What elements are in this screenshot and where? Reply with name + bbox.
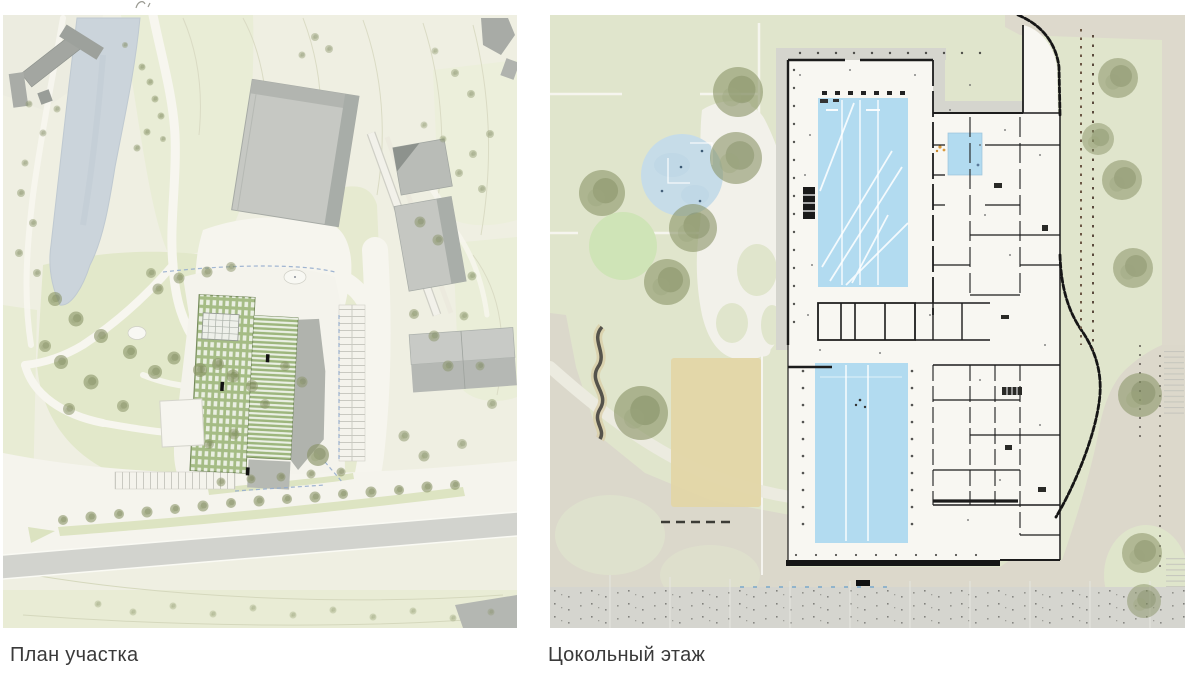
- tree-icon: [835, 554, 837, 556]
- tree-icon: [961, 52, 963, 54]
- tree-icon: [802, 404, 805, 407]
- southeast-building: [409, 327, 517, 392]
- tree-icon: [802, 421, 805, 424]
- pool-stairs: [803, 187, 815, 219]
- tree-icon: [815, 554, 817, 556]
- tree-icon: [452, 484, 456, 488]
- tree-icon: [835, 52, 837, 54]
- tree-icon: [911, 472, 914, 475]
- tree-icon: [417, 221, 421, 225]
- tree-icon: [435, 239, 439, 243]
- tree-icon: [479, 188, 482, 191]
- tree-icon: [911, 506, 914, 509]
- building-south-wall: [786, 560, 1000, 566]
- tree-icon: [1009, 254, 1011, 256]
- tree-icon: [911, 455, 914, 458]
- tree-icon: [300, 54, 303, 57]
- tree-icon: [793, 123, 795, 125]
- tree-icon: [282, 365, 286, 369]
- tree-icon: [55, 108, 58, 111]
- tree-icon: [145, 131, 148, 134]
- tree-icon: [849, 69, 851, 71]
- tree-icon: [1105, 74, 1120, 89]
- tree-icon: [441, 138, 444, 141]
- tree-icon: [116, 513, 120, 517]
- tree-icon: [411, 313, 415, 317]
- tree-icon: [433, 50, 436, 53]
- tree-icon: [895, 554, 897, 556]
- tree-icon: [371, 616, 374, 619]
- tree-icon: [793, 105, 795, 107]
- tree-icon: [41, 345, 46, 350]
- basement-plan-panel: [550, 15, 1185, 628]
- tree-icon: [793, 267, 795, 269]
- tree-icon: [96, 603, 99, 606]
- tree-icon: [119, 405, 124, 410]
- tree-icon: [331, 609, 334, 612]
- east-building-upper: [393, 139, 453, 195]
- tree-icon: [172, 508, 176, 512]
- tree-icon: [153, 98, 156, 101]
- tree-icon: [131, 611, 134, 614]
- tree-icon: [915, 554, 917, 556]
- tree-icon: [206, 443, 210, 447]
- tree-icon: [251, 607, 254, 610]
- tree-icon: [151, 371, 156, 376]
- tree-icon: [487, 133, 490, 136]
- sand-court: [671, 358, 761, 507]
- tree-icon: [231, 433, 235, 437]
- tree-icon: [943, 52, 945, 54]
- tree-icon: [71, 318, 77, 324]
- lawn-circle: [589, 212, 657, 280]
- tree-icon: [875, 554, 877, 556]
- tree-icon: [218, 481, 221, 484]
- tree-icon: [311, 453, 319, 461]
- tree-icon: [468, 93, 471, 96]
- tree-icon: [88, 516, 92, 520]
- tree-icon: [802, 489, 805, 492]
- tree-icon: [720, 153, 740, 173]
- tree-icon: [123, 44, 125, 46]
- tree-icon: [802, 523, 805, 526]
- tree-icon: [911, 489, 914, 492]
- tree-icon: [312, 496, 316, 500]
- tree-icon: [1133, 598, 1146, 611]
- tree-icon: [422, 124, 425, 127]
- splash-pond: [641, 134, 723, 216]
- tree-icon: [452, 72, 455, 75]
- tree-icon: [228, 266, 232, 270]
- tree-icon: [140, 66, 143, 69]
- tree-icon: [451, 617, 454, 620]
- tree-icon: [793, 285, 795, 287]
- tree-icon: [469, 275, 472, 278]
- tree-icon: [811, 264, 813, 266]
- tree-icon: [889, 52, 891, 54]
- tree-icon: [176, 277, 180, 281]
- tree-icon: [879, 352, 881, 354]
- tree-icon: [1004, 129, 1006, 131]
- tree-icon: [461, 315, 464, 318]
- tree-icon: [57, 361, 62, 366]
- tree-icon: [807, 314, 809, 316]
- tree-icon: [653, 278, 670, 295]
- tree-icon: [211, 613, 214, 616]
- tree-icon: [793, 231, 795, 233]
- tree-icon: [456, 172, 459, 175]
- tree-icon: [795, 554, 797, 556]
- tree-icon: [907, 52, 909, 54]
- tree-icon: [489, 403, 493, 407]
- tree-icon: [65, 408, 70, 413]
- tree-icon: [51, 298, 56, 303]
- tree-icon: [421, 455, 425, 459]
- tree-icon: [396, 489, 400, 493]
- tree-icon: [126, 351, 131, 356]
- tree-icon: [248, 478, 251, 481]
- tree-icon: [588, 189, 605, 206]
- tree-icon: [911, 438, 914, 441]
- tree-icon: [793, 69, 795, 71]
- tree-icon: [312, 36, 315, 39]
- tree-icon: [809, 134, 811, 136]
- tree-icon: [955, 554, 957, 556]
- tree-icon: [802, 472, 805, 475]
- tree-icon: [1088, 136, 1100, 148]
- tree-icon: [935, 554, 937, 556]
- tree-icon: [819, 349, 821, 351]
- tree-icon: [802, 370, 805, 373]
- tree-icon: [41, 132, 44, 135]
- tree-icon: [229, 375, 234, 380]
- tree-icon: [802, 438, 805, 441]
- tree-icon: [979, 144, 981, 146]
- tree-icon: [401, 435, 405, 439]
- tree-icon: [853, 52, 855, 54]
- tree-icon: [799, 74, 801, 76]
- site-plan-drawing: [3, 15, 517, 628]
- tree-icon: [34, 272, 37, 275]
- tree-icon: [999, 479, 1001, 481]
- tree-icon: [97, 335, 102, 340]
- tree-icon: [489, 611, 492, 614]
- tree-icon: [16, 252, 19, 255]
- skylight-grid: [202, 313, 239, 341]
- tree-icon: [793, 177, 795, 179]
- tree-icon: [804, 174, 806, 176]
- tree-icon: [1129, 549, 1144, 564]
- tree-icon: [338, 471, 341, 474]
- tree-icon: [911, 370, 914, 373]
- tree-icon: [148, 81, 151, 84]
- tree-icon: [975, 554, 977, 556]
- tree-icon: [262, 403, 266, 407]
- tree-icon: [248, 385, 253, 390]
- tree-icon: [855, 554, 857, 556]
- tree-icon: [159, 115, 162, 118]
- tree-icon: [1044, 344, 1046, 346]
- outdoor-pool: [815, 363, 908, 543]
- tree-icon: [308, 473, 311, 476]
- tree-icon: [459, 443, 463, 447]
- tree-icon: [161, 138, 163, 140]
- tree-icon: [368, 491, 372, 495]
- tree-icon: [979, 379, 981, 381]
- tree-icon: [171, 605, 174, 608]
- tree-icon: [86, 381, 92, 387]
- tree-icon: [911, 421, 914, 424]
- tree-icon: [18, 192, 21, 195]
- tree-icon: [284, 498, 288, 502]
- tree-icon: [793, 321, 795, 323]
- tree-icon: [967, 519, 969, 521]
- tree-icon: [911, 404, 914, 407]
- tree-icon: [911, 387, 914, 390]
- tree-icon: [23, 162, 26, 165]
- tree-icon: [196, 369, 201, 374]
- tree-icon: [135, 147, 138, 150]
- tree-icon: [299, 381, 303, 385]
- indoor-pool: [803, 98, 908, 287]
- tree-icon: [477, 365, 480, 368]
- basement-plan-caption: Цокольный этаж: [548, 644, 705, 666]
- tree-icon: [155, 288, 159, 292]
- site-plan-panel: [3, 15, 517, 628]
- tree-icon: [802, 387, 805, 390]
- tree-icon: [431, 335, 435, 339]
- tree-icon: [278, 476, 281, 479]
- tree-icon: [144, 511, 148, 515]
- tree-icon: [793, 249, 795, 251]
- tree-icon: [30, 222, 33, 225]
- tree-icon: [722, 88, 741, 107]
- tree-icon: [817, 52, 819, 54]
- tree-icon: [27, 103, 30, 106]
- large-hall-building: [232, 79, 359, 226]
- tree-icon: [214, 363, 219, 368]
- tree-icon: [1109, 176, 1124, 191]
- tree-icon: [256, 500, 260, 504]
- tree-icon: [925, 52, 927, 54]
- tree-icon: [793, 141, 795, 143]
- tree-icon: [802, 506, 805, 509]
- tree-icon: [1039, 424, 1041, 426]
- tree-icon: [1039, 154, 1041, 156]
- tree-icon: [470, 153, 473, 156]
- tree-icon: [793, 213, 795, 215]
- tree-icon: [291, 614, 294, 617]
- tree-icon: [204, 271, 208, 275]
- tree-icon: [802, 455, 805, 458]
- tree-icon: [624, 408, 645, 429]
- tree-icon: [914, 74, 916, 76]
- tree-icon: [411, 610, 414, 613]
- tree-icon: [200, 505, 204, 509]
- tree-icon: [340, 493, 344, 497]
- tree-icon: [929, 314, 931, 316]
- tree-icon: [1126, 391, 1143, 408]
- tree-icon: [979, 52, 981, 54]
- tree-icon: [793, 87, 795, 89]
- tree-icon: [984, 214, 986, 216]
- tree-icon: [969, 84, 971, 86]
- tree-icon: [793, 195, 795, 197]
- tree-icon: [148, 272, 152, 276]
- tree-icon: [793, 303, 795, 305]
- tree-icon: [1120, 264, 1135, 279]
- tree-icon: [911, 523, 914, 526]
- cropped-annotation-mark: [134, 0, 152, 9]
- site-plan-caption: План участка: [10, 644, 138, 666]
- tree-icon: [799, 52, 801, 54]
- tree-icon: [871, 52, 873, 54]
- tree-icon: [793, 159, 795, 161]
- tree-icon: [228, 502, 232, 506]
- basement-plan-drawing: [550, 15, 1185, 628]
- tree-icon: [949, 109, 951, 111]
- tree-icon: [170, 357, 175, 362]
- tree-icon: [678, 224, 696, 242]
- tree-icon: [326, 48, 329, 51]
- tree-icon: [445, 365, 449, 369]
- serpentine-wall: [595, 327, 602, 439]
- sports-court: [160, 399, 204, 447]
- tree-icon: [424, 486, 428, 490]
- tree-icon: [60, 519, 64, 523]
- presentation-page: План участка Цокольный этаж: [0, 0, 1197, 682]
